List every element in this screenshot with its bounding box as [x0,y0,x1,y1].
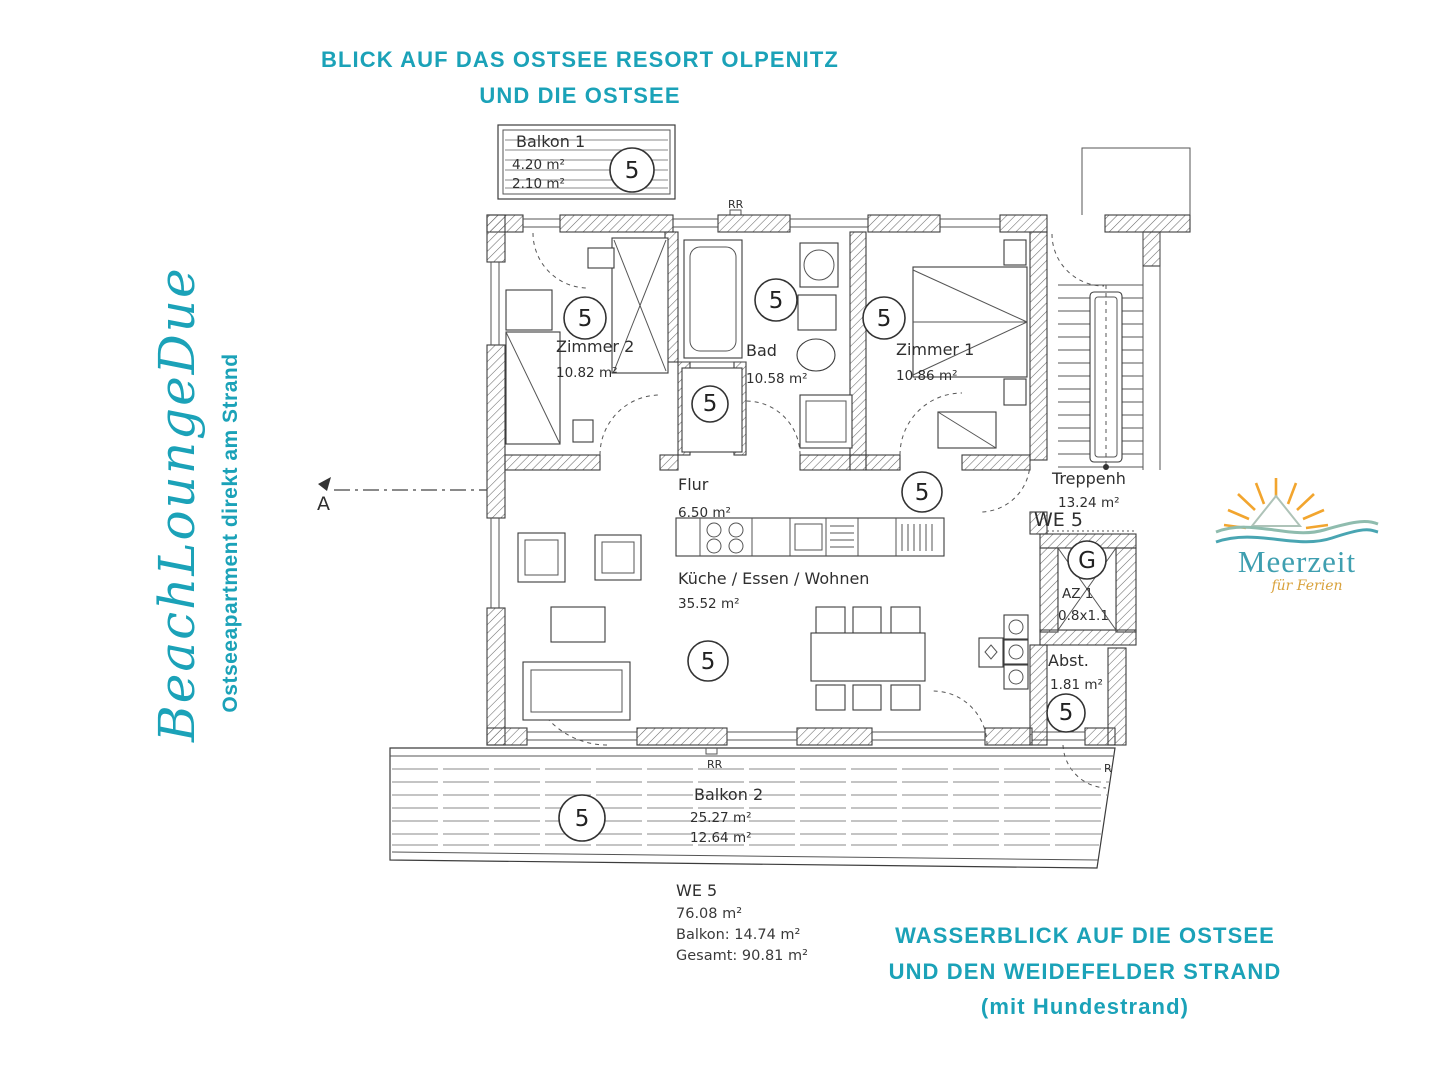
svg-text:G: G [1078,548,1096,574]
section-marker: A [317,477,487,515]
zimmer1-area: 10.86 m² [896,368,958,384]
svg-text:5: 5 [625,158,640,184]
bad-label: Bad [746,341,777,360]
stairwell: Treppenh 13.24 m² WE 5 [1034,285,1143,531]
zimmer1-label: Zimmer 1 [896,340,974,359]
room-flur: Flur 6.50 m² 5 [678,472,942,521]
room-zimmer1: 5 Zimmer 1 10.86 m² [863,240,1027,448]
balkon1-deck: Balkon 1 4.20 m² 2.10 m² 5 [498,125,675,199]
svg-text:5: 5 [769,288,784,314]
unit-badge: 5 [902,472,942,512]
balkon2-label: Balkon 2 [694,785,763,804]
section-marker-letter: A [317,493,330,515]
unit-badge: 5 [559,795,605,841]
abst-label: Abst. [1048,651,1089,670]
az1-label: AZ 1 [1062,586,1093,602]
summary-gesamt: Gesamt: 90.81 m² [676,948,808,964]
summary-title: WE 5 [676,881,717,900]
balkon1-area-b: 2.10 m² [512,176,565,192]
living-furniture [518,533,641,720]
r-label: R [1104,762,1112,775]
unit-summary: WE 5 76.08 m² Balkon: 14.74 m² Gesamt: 9… [676,881,808,964]
top-caption: BLICK AUF DAS OSTSEE RESORT OLPENITZ UND… [285,42,875,113]
unit-badge: 5 [692,386,728,422]
room-zimmer2: 5 Zimmer 2 10.82 m² [506,238,668,444]
balkon2-area-b: 12.64 m² [690,830,752,846]
unit-badge: 5 [688,641,728,681]
rr-label-bottom: RR [707,758,723,771]
balkon1-label: Balkon 1 [516,132,585,151]
zimmer2-label: Zimmer 2 [556,337,634,356]
unit-badge: 5 [564,297,606,339]
az1-size: 0.8x1.1 [1058,608,1109,624]
room-bad: 5 5 Bad 10.58 m² [678,240,852,452]
svg-text:5: 5 [703,391,718,417]
kueche-label: Küche / Essen / Wohnen [678,569,869,588]
svg-text:5: 5 [575,806,590,832]
entry-unit-label: WE 5 [1034,509,1083,531]
balkon2-deck: RR R Balkon 2 25.27 m² 12.64 m² 5 [390,748,1115,868]
brand-script-name: BeachLoungeDue [148,322,228,742]
summary-area: 76.08 m² [676,906,742,922]
svg-text:5: 5 [877,306,892,332]
room-az1: G AZ 1 0.8x1.1 [1040,531,1136,645]
kueche-area: 35.52 m² [678,596,740,612]
balkon1-area-a: 4.20 m² [512,157,565,173]
rr-label-top: RR [728,198,744,211]
zimmer2-area: 10.82 m² [556,365,618,381]
meter-boxes [979,615,1028,689]
svg-text:5: 5 [701,649,716,675]
treppenhaus-label: Treppenh [1051,469,1126,488]
svg-text:5: 5 [915,480,930,506]
balkon2-area-a: 25.27 m² [690,810,752,826]
svg-text:5: 5 [1059,700,1074,726]
unit-badge: 5 [1047,694,1085,732]
abst-area: 1.81 m² [1050,677,1103,693]
svg-text:5: 5 [578,306,593,332]
garderobe-badge: G [1068,541,1106,579]
meerzeit-logo: Meerzeit für Ferien [1212,470,1382,598]
unit-badge: 5 [863,297,905,339]
floor-plan: Balkon 1 4.20 m² 2.10 m² 5 RR [300,110,1205,1000]
unit-badge: 5 [610,148,654,192]
brand-tagline: Ostseeapartment direkt am Strand [219,313,249,753]
top-caption-line1: BLICK AUF DAS OSTSEE RESORT OLPENITZ [285,42,875,78]
floorplan-page: BLICK AUF DAS OSTSEE RESORT OLPENITZ UND… [0,0,1440,1080]
unit-badge: 5 [755,279,797,321]
logo-subtitle: für Ferien [1270,578,1342,594]
house-icon [1252,496,1300,526]
summary-balkon: Balkon: 14.74 m² [676,927,800,943]
dining-set [811,607,925,710]
top-caption-line2: UND DIE OSTSEE [285,78,875,114]
logo-name: Meerzeit [1238,544,1356,579]
bad-area: 10.58 m² [746,371,808,387]
flur-label: Flur [678,475,709,494]
